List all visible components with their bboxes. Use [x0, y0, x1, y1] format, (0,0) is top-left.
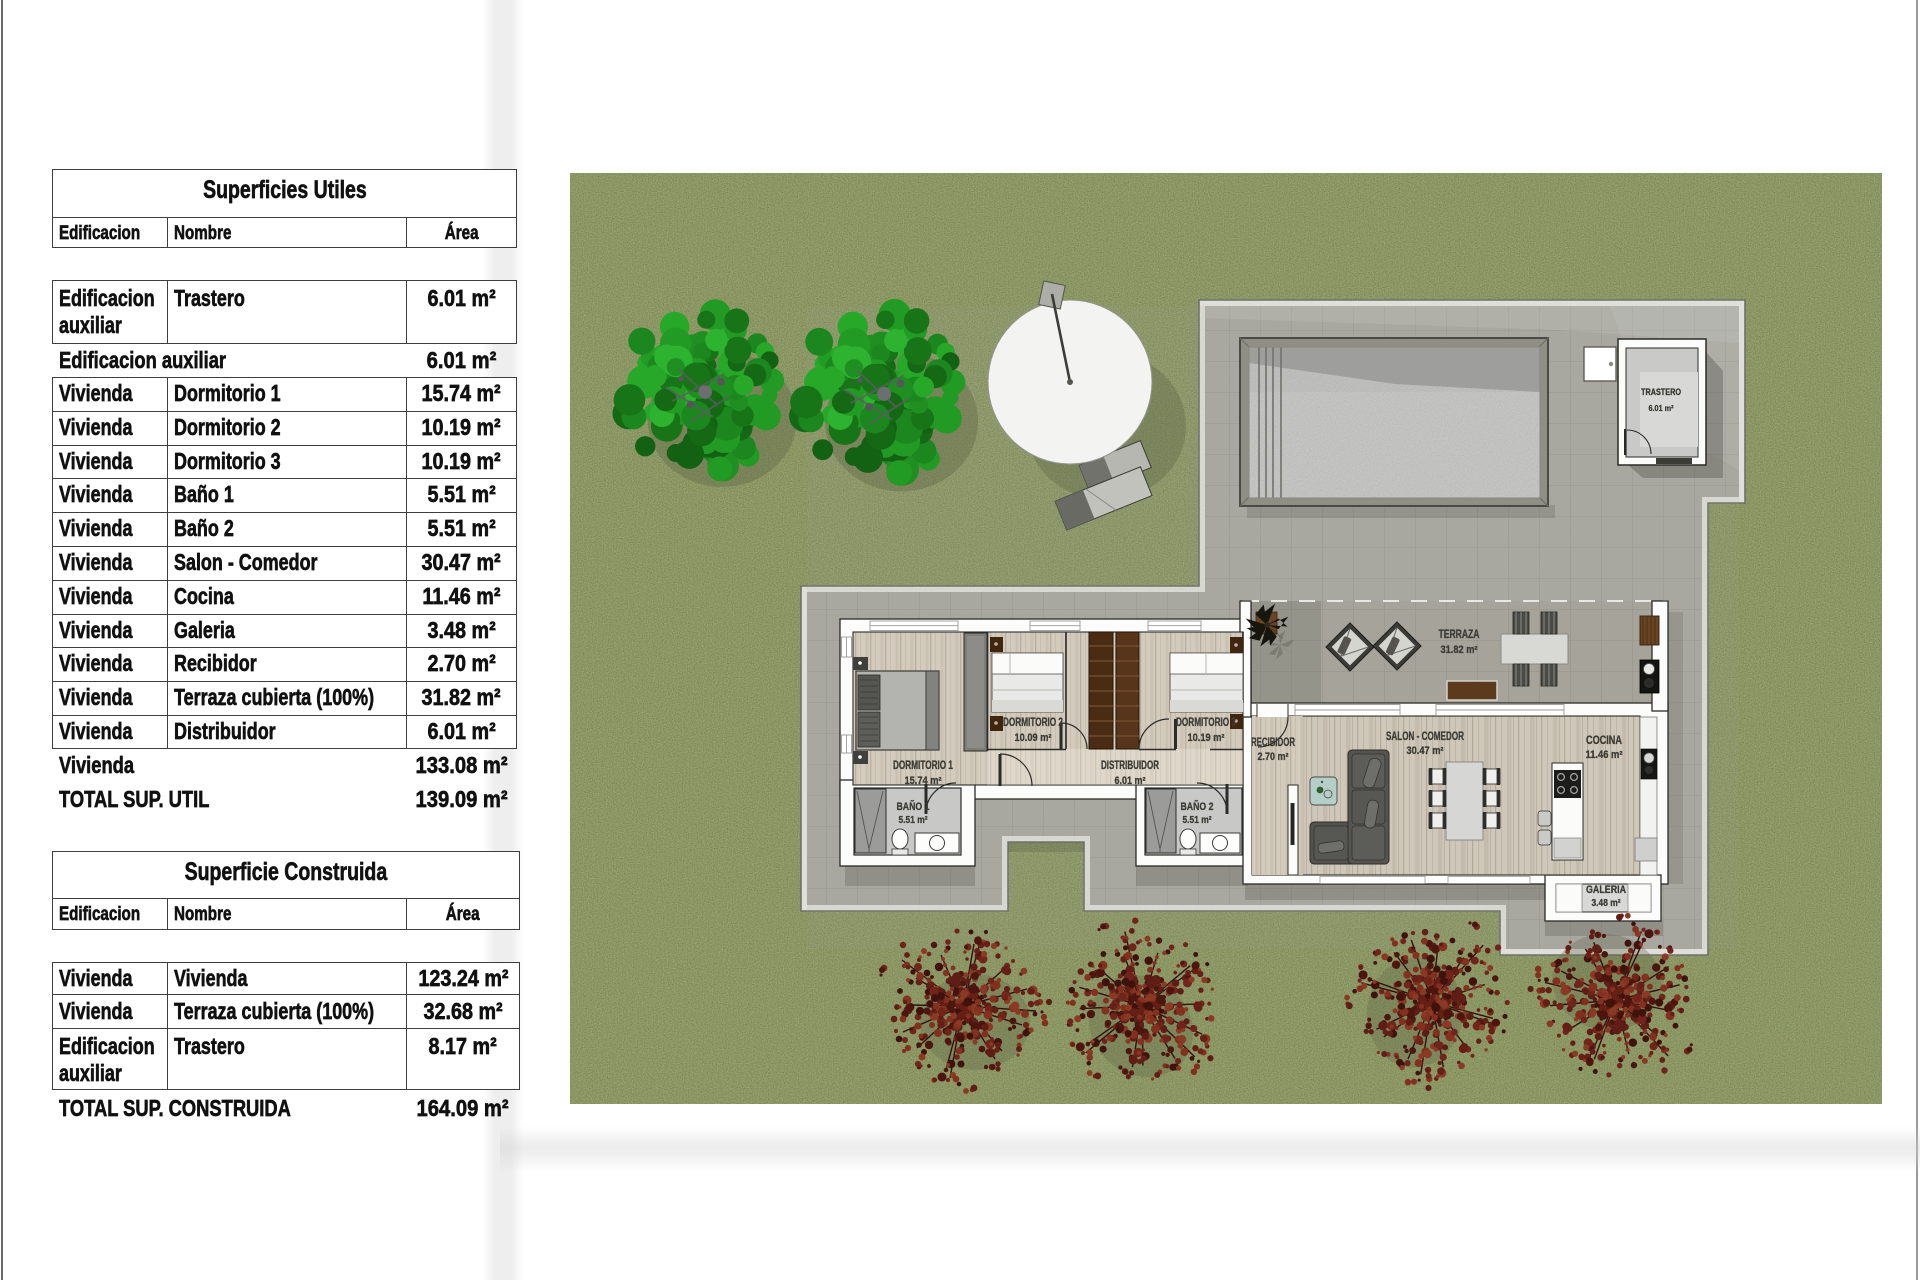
svg-text:DORMITORIO 1: DORMITORIO 1 — [893, 760, 953, 772]
svg-text:31.82 m²: 31.82 m² — [1441, 644, 1478, 656]
svg-text:DORMITORIO 2: DORMITORIO 2 — [1003, 717, 1063, 729]
svg-text:TERRAZA: TERRAZA — [1439, 629, 1480, 641]
svg-text:TRASTERO: TRASTERO — [1641, 387, 1681, 397]
svg-text:DISTRIBUIDOR: DISTRIBUIDOR — [1101, 760, 1159, 772]
svg-text:6.01 m²: 6.01 m² — [1649, 403, 1674, 413]
svg-text:6.01 m²: 6.01 m² — [1115, 775, 1146, 787]
svg-text:30.47 m²: 30.47 m² — [1407, 745, 1444, 757]
svg-text:BAÑO 1: BAÑO 1 — [897, 800, 930, 813]
svg-text:5.51 m²: 5.51 m² — [1183, 815, 1213, 826]
svg-text:GALERIA: GALERIA — [1586, 884, 1626, 896]
svg-text:COCINA: COCINA — [1586, 735, 1622, 747]
svg-text:DORMITORIO 3: DORMITORIO 3 — [1176, 717, 1236, 729]
svg-text:3.48 m²: 3.48 m² — [1592, 898, 1622, 909]
svg-text:15.74 m²: 15.74 m² — [905, 775, 942, 787]
svg-text:BAÑO 2: BAÑO 2 — [1181, 800, 1214, 813]
svg-text:10.19 m²: 10.19 m² — [1188, 732, 1225, 744]
svg-text:2.70 m²: 2.70 m² — [1258, 751, 1289, 763]
svg-text:11.46 m²: 11.46 m² — [1586, 749, 1623, 761]
svg-text:10.09 m²: 10.09 m² — [1015, 732, 1052, 744]
svg-text:SALON - COMEDOR: SALON - COMEDOR — [1386, 731, 1464, 743]
svg-text:RECIBIDOR: RECIBIDOR — [1251, 737, 1295, 749]
svg-text:5.51 m²: 5.51 m² — [899, 815, 929, 826]
